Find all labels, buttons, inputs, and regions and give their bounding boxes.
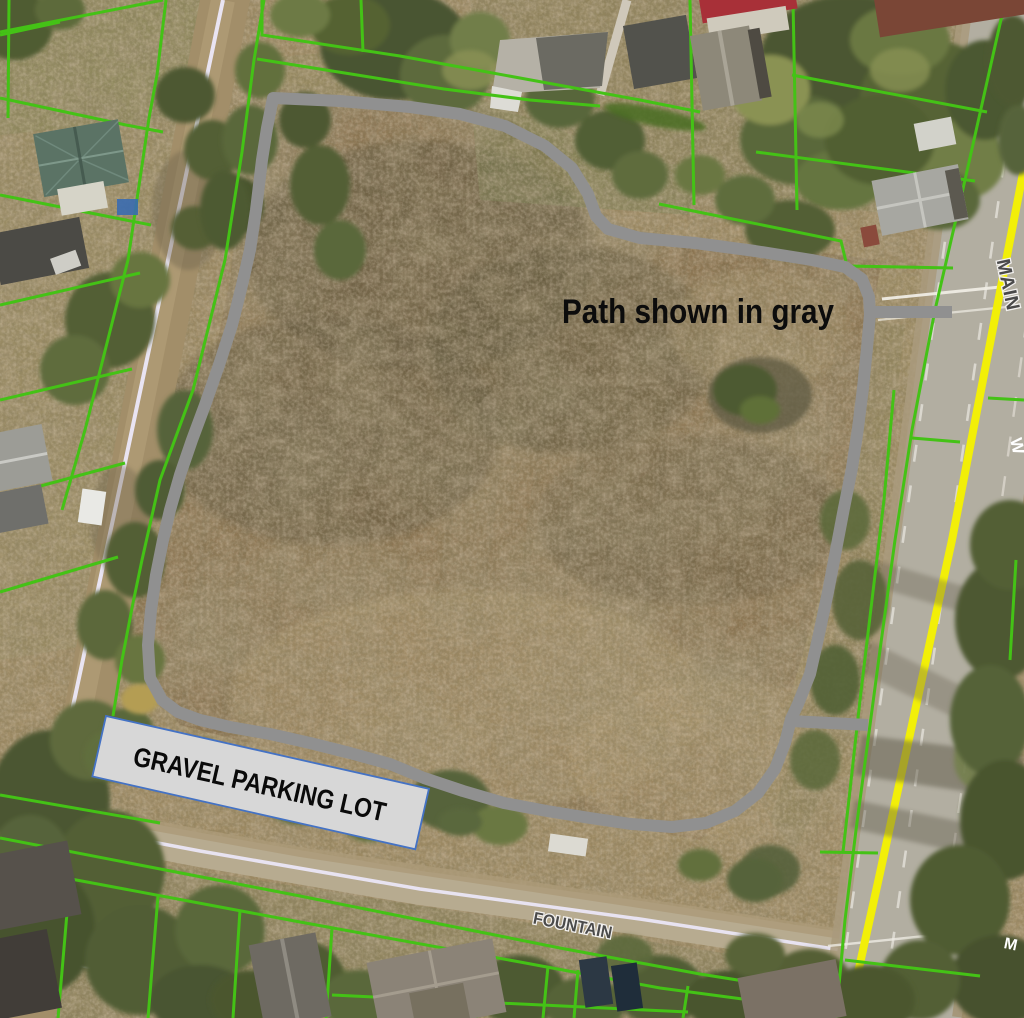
svg-text:Path shown in gray: Path shown in gray [562, 293, 834, 331]
